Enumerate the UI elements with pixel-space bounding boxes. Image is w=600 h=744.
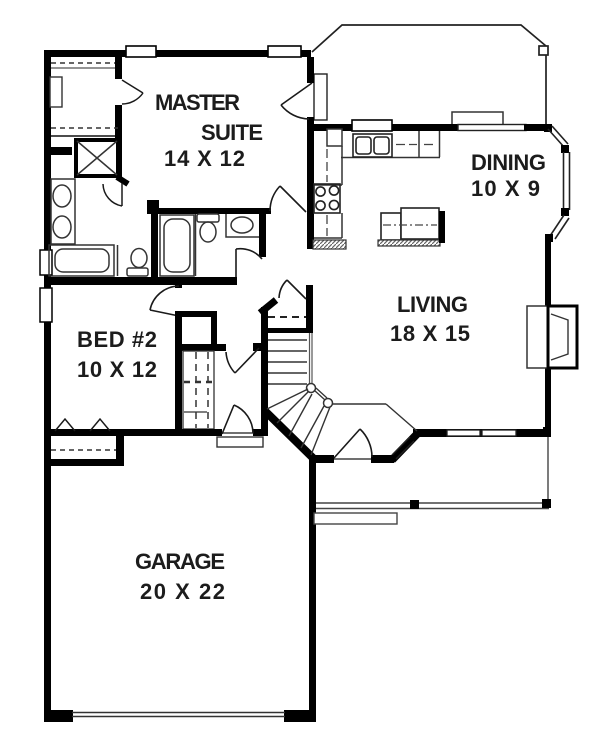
svg-text:18 X 15: 18 X 15 — [390, 321, 470, 346]
svg-text:DINING: DINING — [471, 150, 546, 175]
svg-text:LIVING: LIVING — [397, 292, 468, 317]
svg-text:SUITE: SUITE — [201, 120, 263, 145]
svg-text:BED #2: BED #2 — [77, 327, 157, 352]
svg-text:10 X 9: 10 X 9 — [471, 176, 540, 201]
svg-text:MASTER: MASTER — [155, 90, 240, 115]
svg-text:GARAGE: GARAGE — [135, 549, 225, 574]
svg-text:14 X 12: 14 X 12 — [164, 146, 245, 171]
svg-text:10 X 12: 10 X 12 — [77, 357, 157, 382]
